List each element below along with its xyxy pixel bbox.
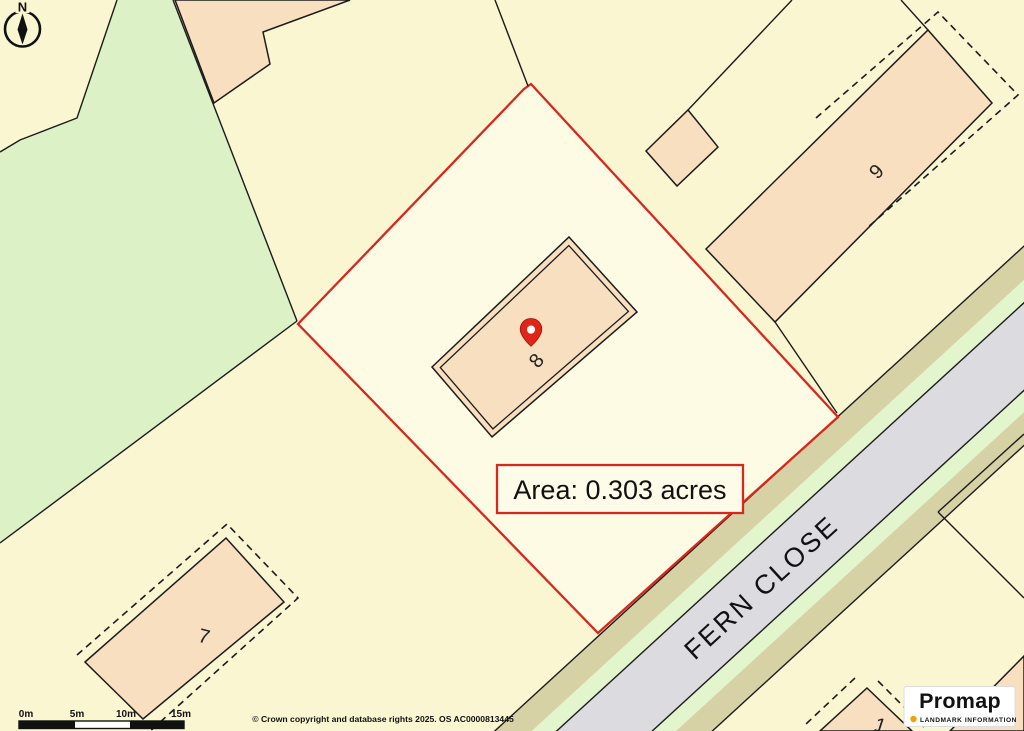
scale-tick-10: 10m [116, 709, 136, 720]
site-plan: FERN CLOSE 7 8 9 1 Area: 0.303 acres N [0, 0, 1024, 731]
area-label: Area: 0.303 acres [513, 475, 726, 505]
promap-brand-text: Promap [919, 689, 1001, 713]
site-plan-map: FERN CLOSE 7 8 9 1 Area: 0.303 acres N [0, 0, 1024, 731]
north-label: N [18, 0, 27, 15]
logo-dot-icon [910, 716, 916, 722]
copyright-text: © Crown copyright and database rights 20… [252, 714, 514, 724]
scale-tick-15: 15m [171, 709, 191, 720]
area-annotation: Area: 0.303 acres [497, 465, 743, 513]
scale-tick-5: 5m [70, 709, 85, 720]
promap-logo: Promap LANDMARK INFORMATION [904, 687, 1017, 727]
scale-tick-0: 0m [19, 709, 34, 720]
promap-tagline-text: LANDMARK INFORMATION [920, 717, 1017, 724]
